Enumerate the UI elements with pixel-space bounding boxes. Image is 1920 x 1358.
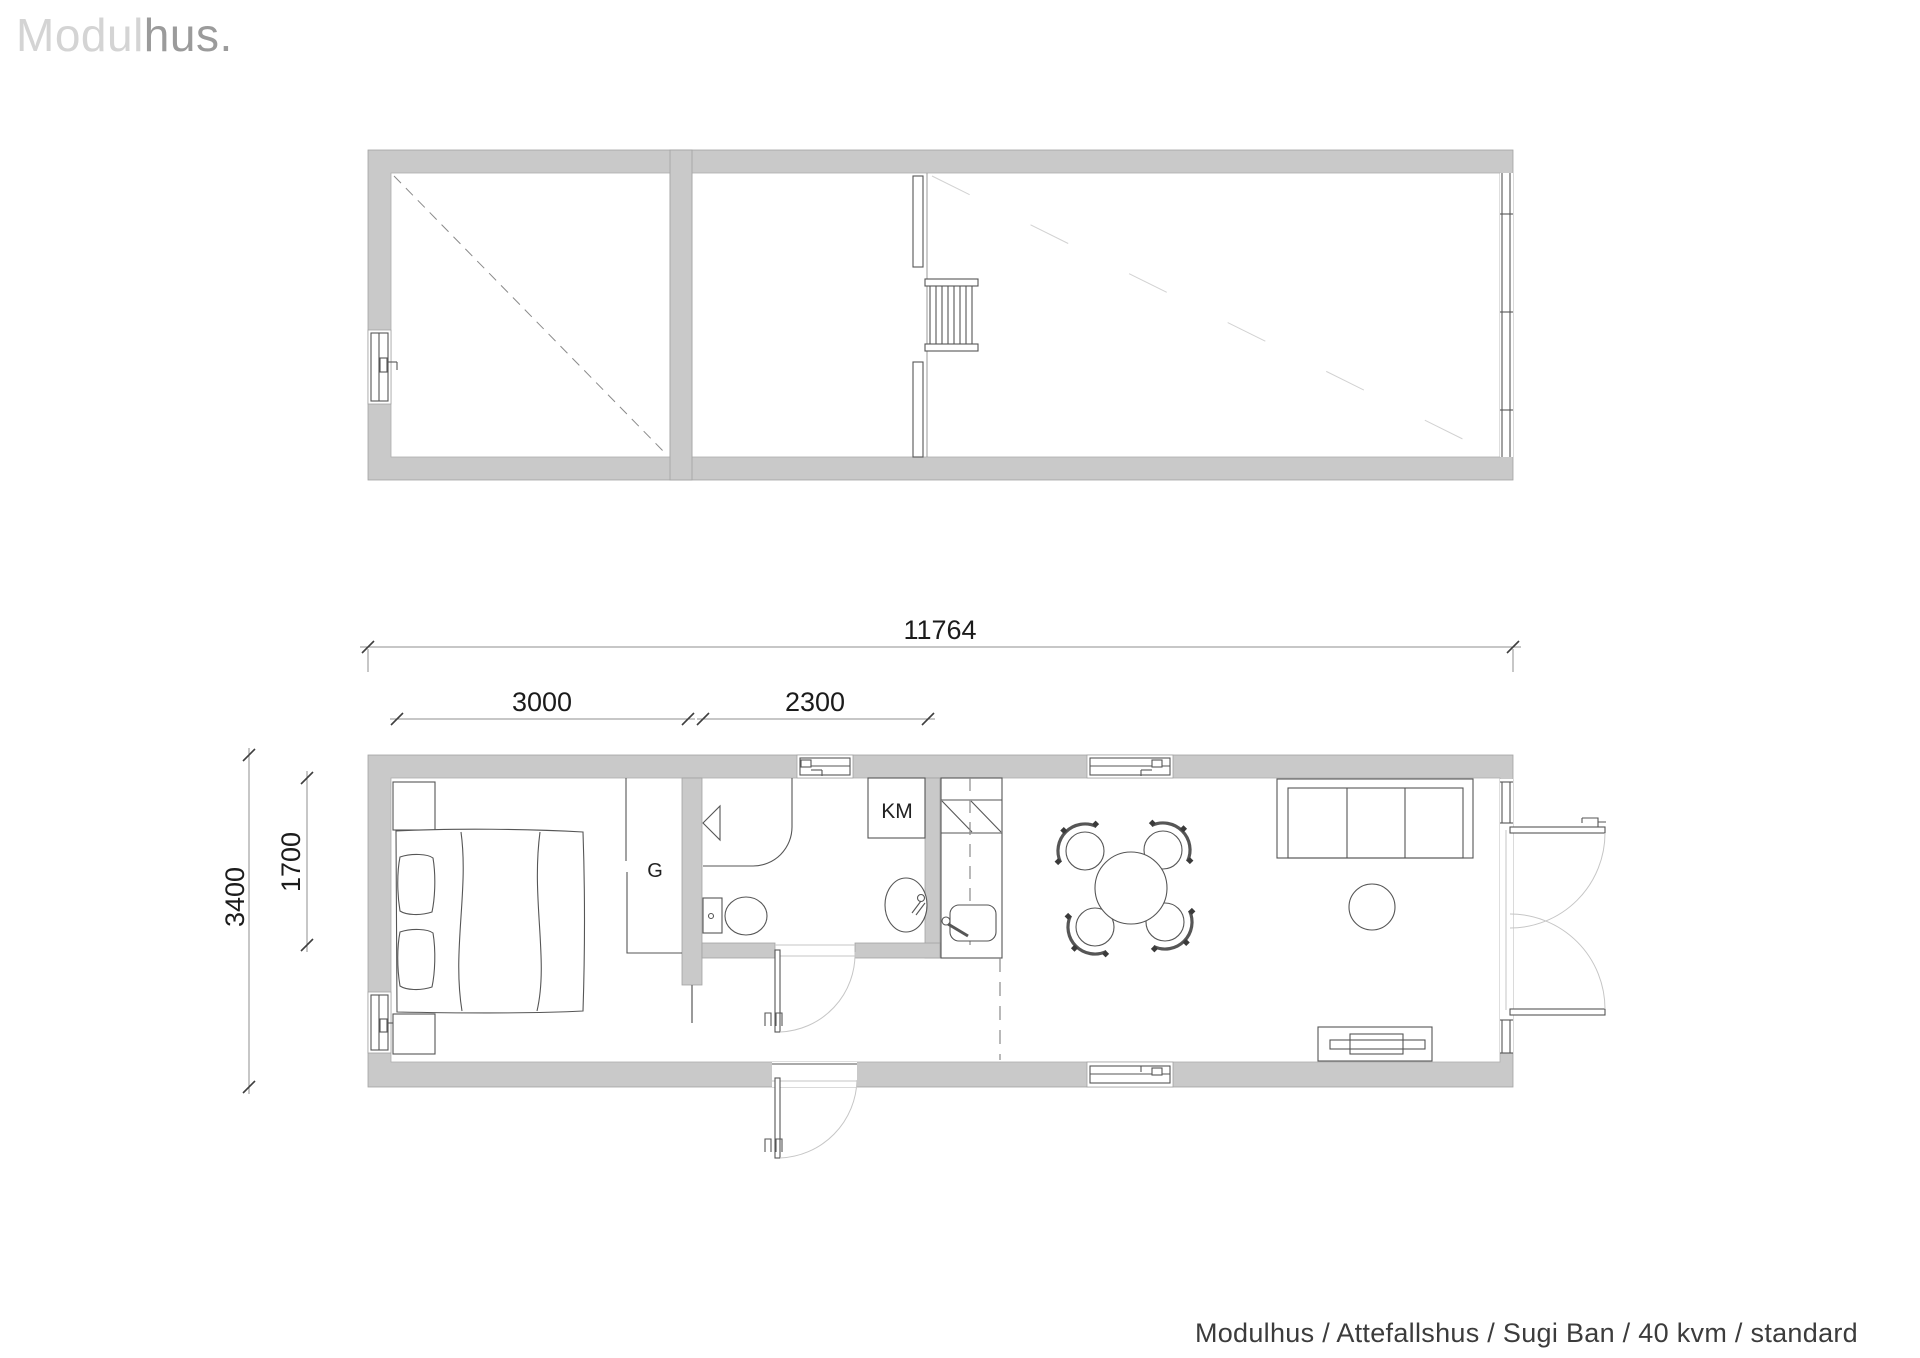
entry-door-swing-arc	[780, 1080, 857, 1158]
dim-bathroom-width-text: 2300	[785, 687, 845, 717]
pillow	[398, 929, 435, 989]
french-door-leaf-bottom	[1510, 1009, 1605, 1015]
floorplan-drawing: G KM	[0, 0, 1920, 1358]
window-handle-icon	[380, 358, 387, 372]
loft-railing-top	[913, 176, 923, 267]
bathroom-bottom-wall-left	[702, 943, 775, 958]
loft-sleeping-area	[692, 173, 1500, 457]
dim-total-width: 11764	[360, 615, 1521, 672]
loft-railing-bottom	[913, 362, 923, 457]
dim-bedroom-depth-text: 1700	[276, 832, 306, 892]
tv-bench	[1318, 1027, 1432, 1061]
french-door-leaf-top	[1510, 827, 1605, 833]
dim-bedroom-width: 3000	[390, 687, 695, 725]
bathroom-bottom-wall-right	[855, 943, 940, 958]
bathroom-sink	[885, 878, 927, 932]
dim-total-width-text: 11764	[903, 615, 976, 645]
toilet	[703, 897, 767, 935]
double-bed	[396, 829, 585, 1013]
dim-bathroom-width: 2300	[697, 687, 935, 725]
upper-floor-plan	[368, 150, 1513, 480]
nightstand-bottom	[393, 1014, 435, 1054]
coffee-table	[1349, 884, 1395, 930]
dining-window-top	[1087, 755, 1173, 778]
loft-partition-wall	[670, 150, 692, 480]
entry-door	[765, 1062, 857, 1158]
bedroom-wall	[682, 778, 702, 985]
floorplan-sheet: Modulhus.	[0, 0, 1920, 1358]
loft-gable-window	[1500, 173, 1513, 457]
french-doors	[1510, 818, 1606, 1015]
window-handle-icon	[801, 760, 811, 767]
french-door-swing-arc-top	[1510, 833, 1605, 928]
bathroom-right-wall	[925, 778, 940, 958]
dim-bedroom-width-text: 3000	[512, 687, 572, 717]
washing-machine-label: KM	[881, 800, 913, 823]
sheet-caption: Modulhus / Attefallshus / Sugi Ban / 40 …	[1195, 1318, 1858, 1349]
nightstand-top	[393, 782, 435, 830]
window-handle-icon	[1152, 1068, 1162, 1075]
wardrobe-label: G	[647, 860, 663, 882]
dim-total-depth: 3400	[220, 748, 255, 1094]
window-handle-icon	[1152, 760, 1162, 767]
washing-machine: KM	[868, 778, 925, 838]
sofa	[1277, 779, 1473, 858]
main-floor-plan: G KM	[368, 755, 1606, 1158]
pillow	[398, 854, 435, 914]
french-door-swing-arc-bottom	[1510, 914, 1605, 1009]
door-handle-icon	[1582, 818, 1606, 827]
dim-total-depth-text: 3400	[220, 867, 250, 927]
dining-table	[1095, 852, 1167, 924]
dim-bedroom-depth: 1700	[276, 771, 313, 952]
window-handle-icon	[380, 1019, 387, 1032]
bathroom-window	[797, 755, 853, 778]
dining-window-bottom	[1087, 1062, 1173, 1087]
